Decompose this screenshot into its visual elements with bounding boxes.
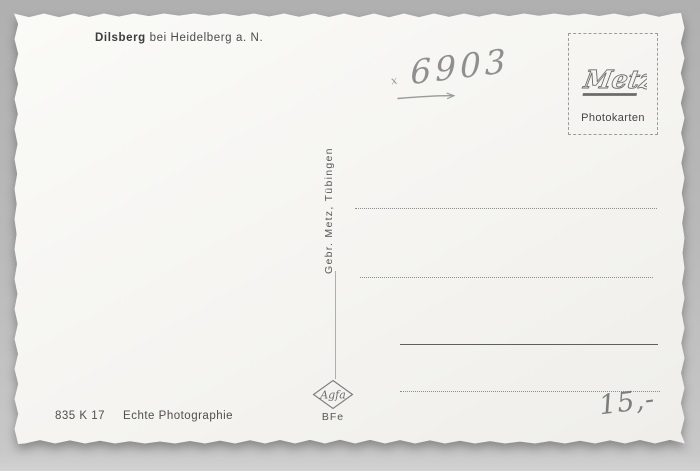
- address-line-2: [360, 277, 653, 278]
- metz-logo-text: Metz: [581, 64, 647, 94]
- postcard-shadow-wrapper: Dilsberg bei Heidelberg a. N. 6903 x Met…: [14, 13, 685, 444]
- publisher-box-label: Photokarten: [581, 112, 645, 124]
- scanned-postcard-back: Dilsberg bei Heidelberg a. N. 6903 x Met…: [0, 0, 700, 471]
- postcard: Dilsberg bei Heidelberg a. N. 6903 x Met…: [14, 13, 685, 444]
- order-code: 835 K 17: [55, 410, 105, 422]
- photo-label: Echte Photographie: [123, 410, 233, 422]
- caption-place: Dilsberg: [95, 32, 146, 44]
- pencil-arrow-icon: [395, 90, 459, 102]
- agfa-logo-text: Agfa: [319, 389, 346, 402]
- address-line-1: [355, 208, 657, 209]
- handwritten-price: 15,-: [597, 384, 656, 422]
- address-line-3: [400, 344, 658, 345]
- publisher-imprint-vertical: Gebr. Metz, Tübingen: [323, 144, 335, 274]
- center-divider-line: [335, 271, 336, 379]
- metz-logo: Metz: [579, 59, 647, 101]
- agfa-diamond-logo: Agfa: [312, 379, 354, 411]
- handwritten-x-mark: x: [390, 73, 399, 87]
- footer-imprint: 835 K 17 Echte Photographie: [55, 410, 233, 422]
- caption-suffix: bei Heidelberg a. N.: [150, 32, 264, 44]
- publisher-stamp-box: Metz Photokarten: [568, 33, 658, 135]
- caption: Dilsberg bei Heidelberg a. N.: [95, 32, 263, 44]
- paper-type-code: BFe: [312, 411, 354, 423]
- handwritten-postal-code: 6903: [410, 41, 510, 92]
